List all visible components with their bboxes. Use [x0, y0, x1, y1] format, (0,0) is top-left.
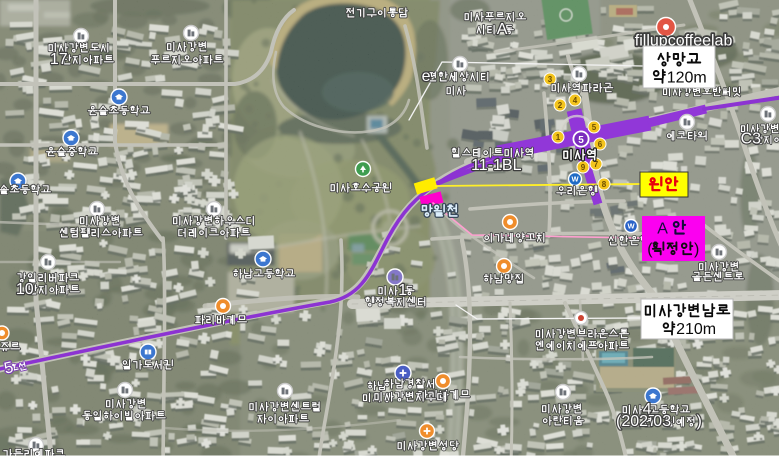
svg-text:3: 3	[548, 75, 553, 84]
svg-text:9: 9	[581, 163, 586, 172]
svg-text:17: 17	[50, 51, 68, 68]
svg-text:W: W	[627, 222, 635, 231]
svg-text:2: 2	[558, 101, 563, 110]
svg-text:8: 8	[602, 180, 607, 189]
svg-text:1: 1	[556, 133, 561, 142]
svg-text:): )	[694, 241, 699, 258]
svg-text:10: 10	[16, 281, 34, 298]
svg-text:6: 6	[598, 140, 603, 149]
svg-text:A: A	[497, 21, 508, 38]
svg-text:11-1BL: 11-1BL	[471, 157, 522, 174]
svg-text:120m: 120m	[667, 69, 707, 86]
svg-text:5: 5	[592, 123, 597, 132]
svg-text:1: 1	[398, 282, 407, 299]
svg-text:W: W	[571, 175, 579, 184]
svg-text:e: e	[422, 68, 431, 85]
svg-text:03: 03	[653, 413, 671, 430]
svg-text:5: 5	[578, 135, 584, 146]
svg-text:C3: C3	[741, 131, 762, 148]
svg-text:): )	[697, 413, 702, 430]
svg-text:210m: 210m	[676, 321, 716, 338]
svg-text:(: (	[647, 241, 653, 258]
svg-text:4: 4	[573, 96, 578, 105]
svg-text:A: A	[657, 220, 668, 237]
svg-text:(2027: (2027	[616, 413, 657, 430]
